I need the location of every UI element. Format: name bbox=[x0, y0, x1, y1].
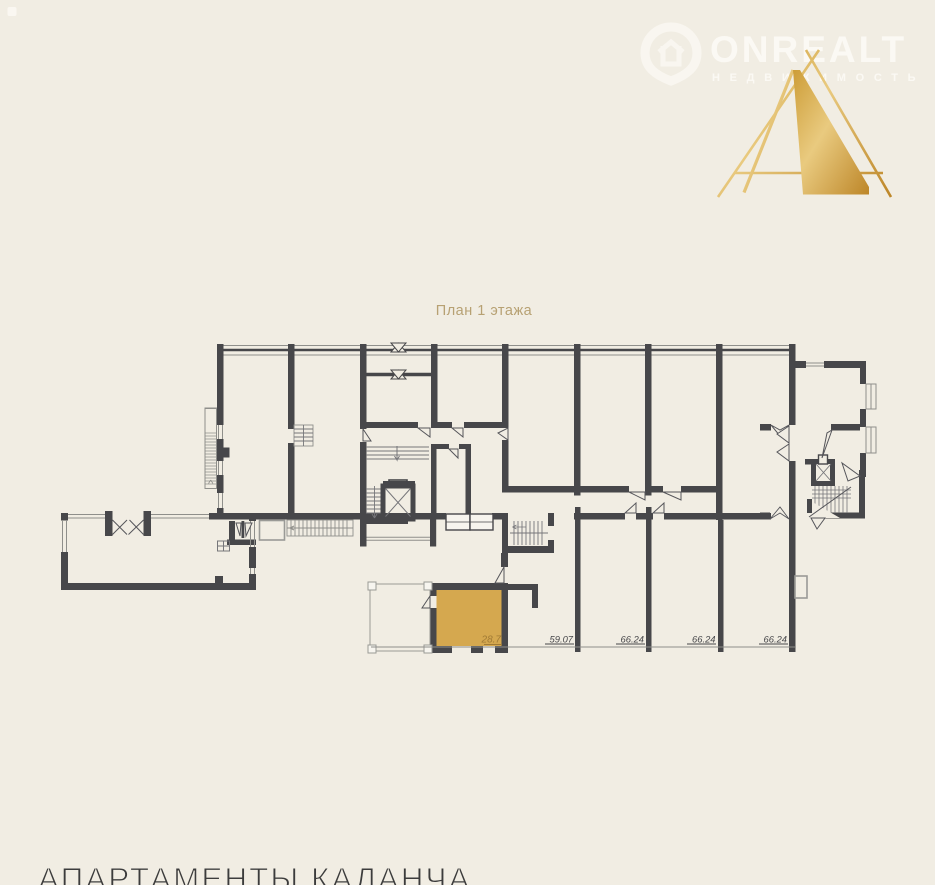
svg-text:АПАРТАМЕНТЫ КАЛАНЧА: АПАРТАМЕНТЫ КАЛАНЧА bbox=[38, 861, 471, 885]
svg-text:66.24: 66.24 bbox=[764, 634, 787, 645]
svg-text:66.24: 66.24 bbox=[692, 634, 715, 645]
svg-text:План 1 этажа: План 1 этажа bbox=[436, 303, 533, 319]
svg-text:66.24: 66.24 bbox=[621, 634, 644, 645]
svg-text:28.7: 28.7 bbox=[481, 635, 502, 646]
svg-text:59.07: 59.07 bbox=[550, 634, 574, 645]
